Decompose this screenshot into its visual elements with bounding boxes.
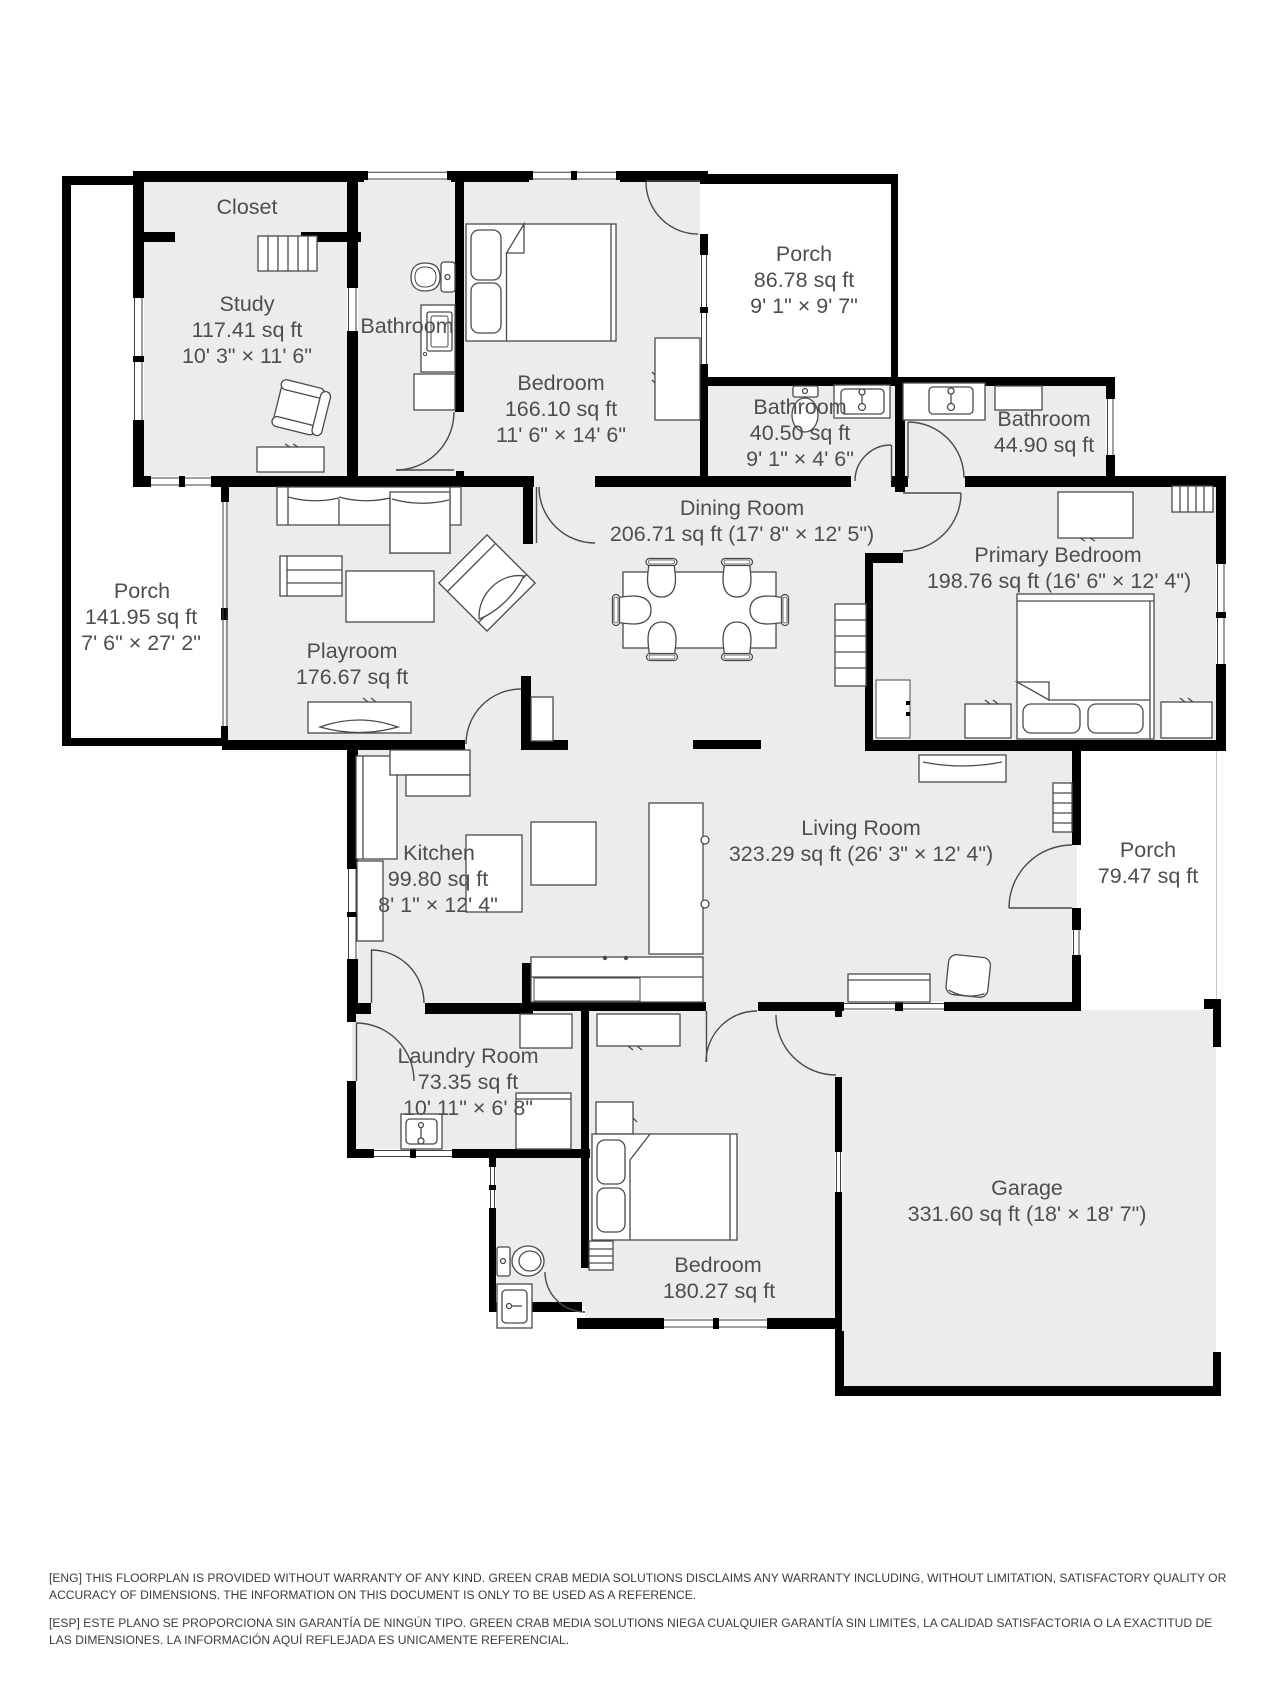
- svg-text:8' 1" × 12' 4": 8' 1" × 12' 4": [378, 893, 498, 917]
- svg-text:323.29 sq ft (26' 3" × 12' 4"): 323.29 sq ft (26' 3" × 12' 4"): [729, 842, 993, 866]
- svg-text:9' 1" × 9' 7": 9' 1" × 9' 7": [750, 294, 858, 318]
- svg-text:99.80 sq ft: 99.80 sq ft: [388, 867, 488, 891]
- svg-text:176.67 sq ft: 176.67 sq ft: [296, 665, 408, 689]
- svg-text:180.27 sq ft: 180.27 sq ft: [663, 1279, 775, 1303]
- svg-text:10' 11" × 6' 8": 10' 11" × 6' 8": [403, 1096, 533, 1120]
- svg-text:10' 3" × 11' 6": 10' 3" × 11' 6": [182, 344, 312, 368]
- svg-text:86.78 sq ft: 86.78 sq ft: [754, 268, 854, 292]
- svg-text:206.71 sq ft (17' 8" × 12' 5"): 206.71 sq ft (17' 8" × 12' 5"): [610, 522, 874, 546]
- svg-text:Dining Room: Dining Room: [680, 496, 804, 520]
- svg-text:Garage: Garage: [991, 1176, 1063, 1200]
- svg-text:[ESP] ESTE PLANO SE PROPORCION: [ESP] ESTE PLANO SE PROPORCIONA SIN GARA…: [49, 1615, 1212, 1630]
- svg-text:7' 6" × 27' 2": 7' 6" × 27' 2": [81, 631, 201, 655]
- svg-text:Living Room: Living Room: [801, 816, 921, 840]
- svg-text:Porch: Porch: [114, 579, 170, 603]
- svg-text:Closet: Closet: [217, 195, 278, 219]
- svg-text:44.90 sq ft: 44.90 sq ft: [994, 433, 1094, 457]
- svg-text:ACCURACY OF DIMENSIONS. THE IN: ACCURACY OF DIMENSIONS. THE INFORMATION …: [49, 1588, 696, 1602]
- svg-text:166.10 sq ft: 166.10 sq ft: [505, 397, 617, 421]
- svg-text:LAS DIMENSIONES. LA INFORMACIÓ: LAS DIMENSIONES. LA INFORMACIÓN AQUÍ REF…: [49, 1632, 569, 1647]
- svg-text:40.50 sq ft: 40.50 sq ft: [750, 421, 850, 445]
- svg-text:Porch: Porch: [1120, 838, 1176, 862]
- svg-text:[ENG] THIS FLOORPLAN IS PROVID: [ENG] THIS FLOORPLAN IS PROVIDED WITHOUT…: [49, 1571, 1227, 1585]
- svg-text:9' 1" × 4' 6": 9' 1" × 4' 6": [746, 447, 854, 471]
- svg-text:Laundry Room: Laundry Room: [397, 1044, 538, 1068]
- svg-text:Bathroom: Bathroom: [997, 407, 1090, 431]
- svg-text:141.95 sq ft: 141.95 sq ft: [85, 605, 197, 629]
- svg-text:73.35 sq ft: 73.35 sq ft: [418, 1070, 518, 1094]
- svg-text:Kitchen: Kitchen: [403, 841, 475, 865]
- svg-text:331.60 sq ft (18' × 18' 7"): 331.60 sq ft (18' × 18' 7"): [908, 1202, 1147, 1226]
- svg-text:Bathroom: Bathroom: [753, 395, 846, 419]
- svg-text:Study: Study: [220, 292, 275, 316]
- svg-text:79.47 sq ft: 79.47 sq ft: [1098, 864, 1198, 888]
- svg-text:11' 6" × 14' 6": 11' 6" × 14' 6": [496, 423, 626, 447]
- svg-text:Bathroom: Bathroom: [360, 314, 453, 338]
- svg-text:Porch: Porch: [776, 242, 832, 266]
- svg-text:Primary Bedroom: Primary Bedroom: [974, 543, 1141, 567]
- svg-text:198.76 sq ft (16' 6" × 12' 4"): 198.76 sq ft (16' 6" × 12' 4"): [927, 569, 1191, 593]
- svg-text:117.41 sq ft: 117.41 sq ft: [192, 318, 303, 342]
- svg-text:Playroom: Playroom: [307, 639, 398, 663]
- svg-text:Bedroom: Bedroom: [674, 1253, 761, 1277]
- svg-text:Bedroom: Bedroom: [517, 371, 604, 395]
